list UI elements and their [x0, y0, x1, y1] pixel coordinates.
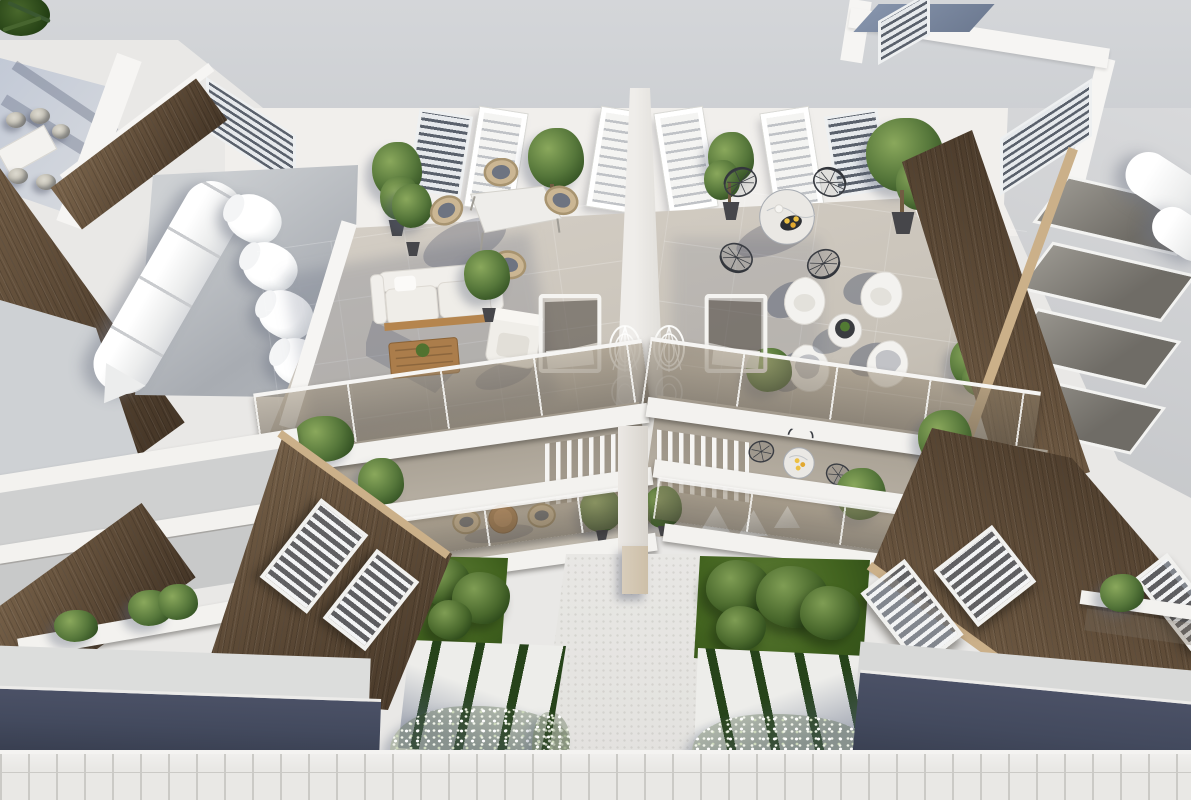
wire-chair	[809, 163, 850, 202]
sidewalk[interactable]	[0, 750, 1191, 800]
table-plant	[840, 322, 850, 332]
neighbor-chair	[6, 112, 26, 128]
neighbor-chair	[30, 108, 50, 124]
plant-pot	[888, 212, 918, 234]
wire-chair	[747, 439, 775, 464]
plant-potted	[464, 250, 512, 324]
plant-foliage	[464, 250, 510, 300]
plant-foliage	[54, 610, 98, 642]
tree-trunk	[900, 190, 904, 214]
garden-bush	[428, 600, 472, 640]
divider-wall-lower	[618, 426, 648, 556]
garden-bush	[800, 586, 860, 640]
entry-pillar	[622, 546, 648, 594]
lemon	[784, 218, 789, 223]
rattan-chair	[484, 158, 518, 187]
garden-bush	[716, 606, 766, 650]
neighbor-chair	[8, 168, 28, 184]
marble-bistro-table	[760, 190, 815, 245]
lemon	[790, 222, 795, 227]
marble-table	[782, 446, 817, 481]
wire-chair	[720, 163, 761, 202]
plant-foliage	[1100, 574, 1144, 612]
plant-shrub	[128, 584, 198, 628]
plant-shrub	[54, 610, 100, 644]
architectural-render-scene	[0, 0, 1191, 800]
plant-foliage	[158, 584, 198, 620]
plant-shrub	[1100, 574, 1146, 614]
lemon	[793, 216, 798, 221]
neighbor-chair	[52, 124, 70, 139]
plant-pot	[480, 308, 498, 322]
cup	[775, 205, 783, 213]
